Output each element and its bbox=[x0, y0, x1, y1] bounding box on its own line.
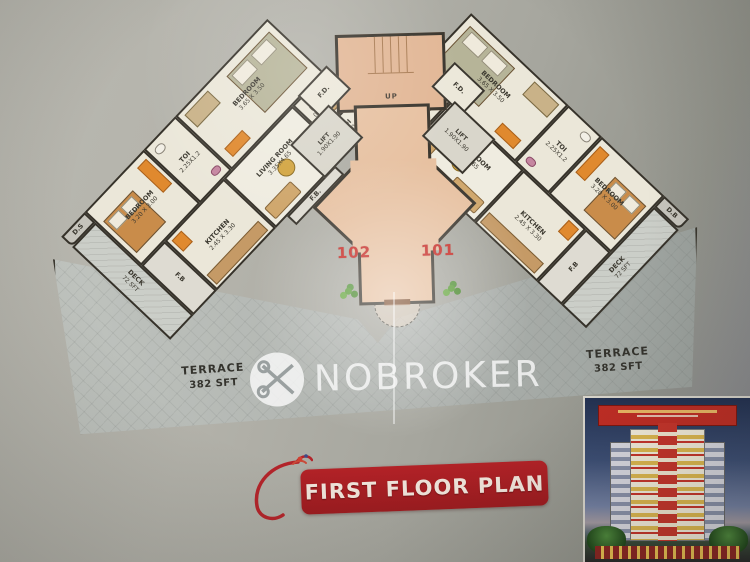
nobroker-watermark: NOBROKER bbox=[247, 345, 543, 409]
nobroker-keys-icon bbox=[247, 350, 306, 409]
inset-shops-base bbox=[595, 546, 740, 559]
floor-plan-title: FIRST FLOOR PLAN bbox=[304, 471, 545, 504]
flat-number-102: 102 bbox=[337, 243, 372, 262]
stair-steps bbox=[367, 36, 414, 75]
stair-up-label: UP bbox=[339, 91, 443, 102]
plant-icon bbox=[345, 288, 352, 295]
inset-tower-core bbox=[658, 423, 678, 541]
door-swing-arc bbox=[374, 304, 421, 328]
plant-icon bbox=[448, 285, 455, 292]
staircase: UP bbox=[335, 32, 447, 113]
lobby-floor bbox=[350, 158, 439, 252]
floor-plan-photo: TERRACE 382 SFT TERRACE 382 SFT D.S DECK… bbox=[0, 0, 750, 562]
floor-plan-title-banner: FIRST FLOOR PLAN bbox=[300, 460, 549, 514]
watermark-text: NOBROKER bbox=[314, 353, 543, 399]
building-elevation-inset bbox=[583, 396, 750, 562]
flat-number-101: 101 bbox=[421, 241, 456, 260]
